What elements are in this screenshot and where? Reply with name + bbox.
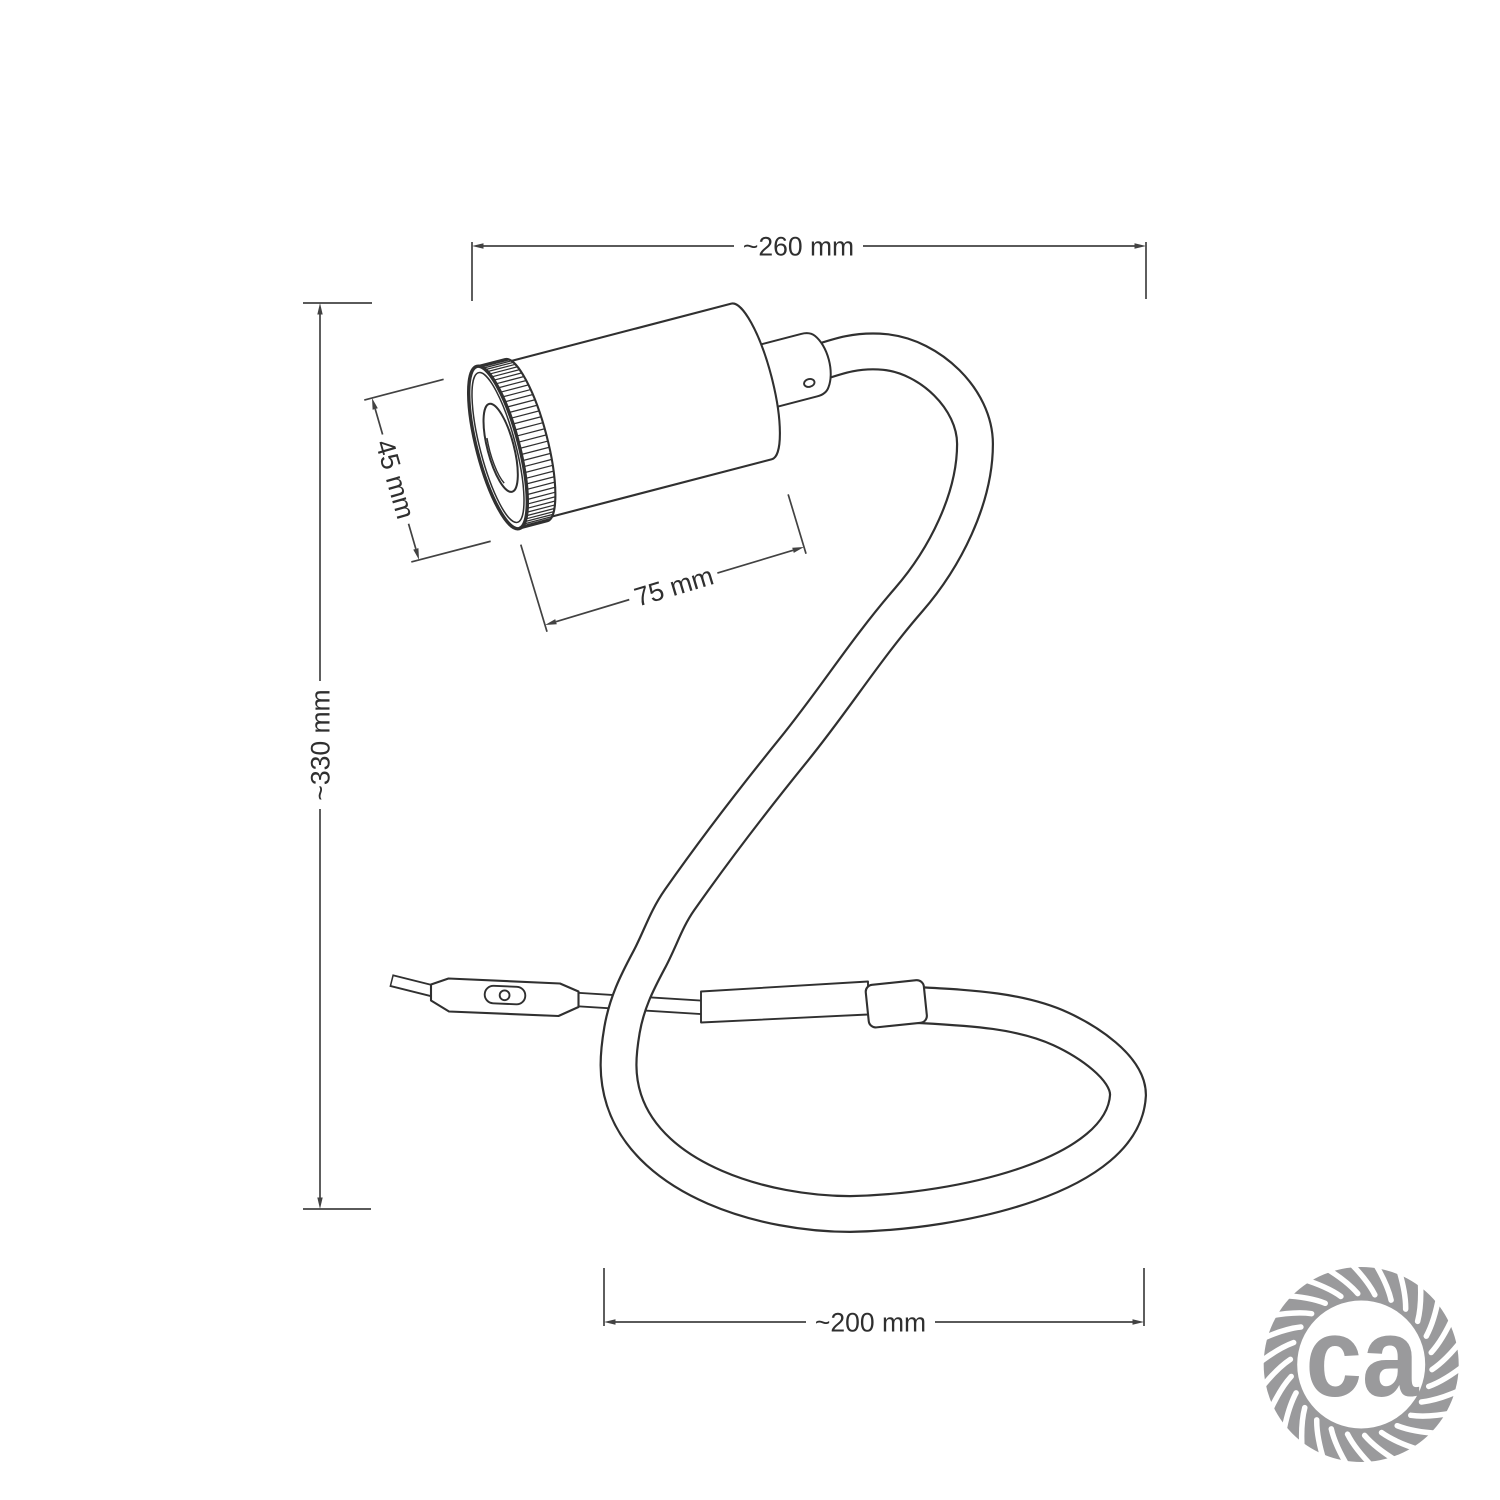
svg-text:~200 mm: ~200 mm — [815, 1308, 926, 1338]
svg-text:ca: ca — [1306, 1295, 1420, 1420]
svg-text:~260 mm: ~260 mm — [743, 232, 854, 262]
svg-text:~330 mm: ~330 mm — [306, 689, 336, 800]
